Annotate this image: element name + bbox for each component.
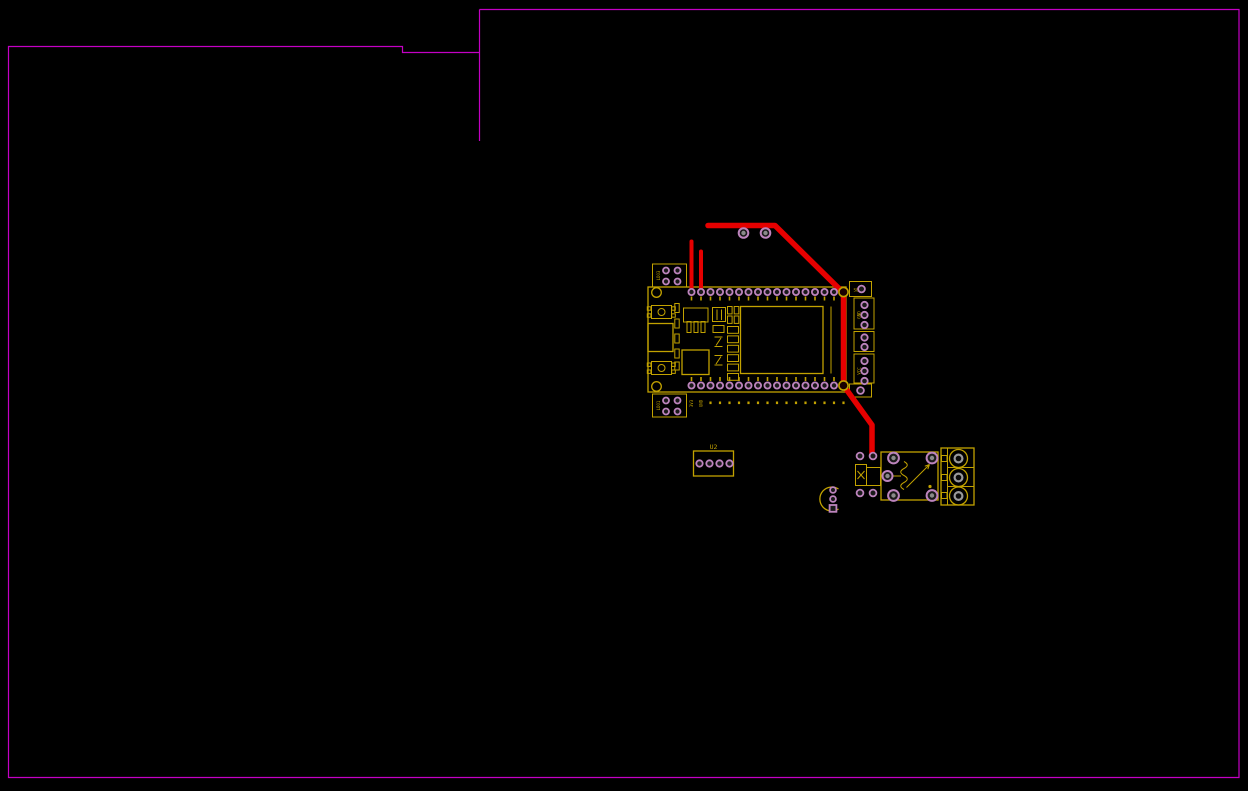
boot-button[interactable] [647, 306, 675, 319]
through-hole-pad[interactable] [783, 377, 789, 389]
jumper-block-top-left[interactable]: LDO3 [653, 264, 687, 287]
diode-symbol [715, 337, 723, 347]
through-hole-pad[interactable] [726, 289, 732, 301]
u2-refdes[interactable]: U2 [710, 443, 718, 451]
via[interactable] [761, 228, 771, 238]
relay-pads[interactable] [883, 453, 938, 501]
through-hole-pad[interactable] [831, 289, 837, 301]
through-hole-pad[interactable] [698, 289, 704, 301]
through-hole-pad[interactable] [812, 289, 818, 301]
through-hole-pad[interactable] [821, 377, 827, 389]
bottom-pin-name-row: 3V3 GND [689, 399, 845, 407]
transistor-pads[interactable] [830, 487, 837, 512]
voltage-regulator[interactable] [684, 308, 709, 333]
via[interactable] [739, 228, 749, 238]
corner-pad-highlight[interactable] [839, 381, 848, 390]
through-hole-pad[interactable] [802, 377, 808, 389]
through-hole-pad[interactable] [802, 289, 808, 301]
through-hole-pad[interactable] [793, 289, 799, 301]
through-hole-pad[interactable] [774, 289, 780, 301]
passive-parts [713, 307, 739, 381]
through-hole-pad[interactable] [736, 377, 742, 389]
through-hole-pad[interactable] [764, 289, 770, 301]
mounting-hole[interactable] [652, 382, 662, 392]
through-hole-pad[interactable] [755, 377, 761, 389]
trace-main[interactable] [708, 226, 872, 458]
tiny-silk-label: 3V3 [689, 399, 694, 407]
relay-switch-lever [907, 465, 930, 488]
corner-pad-highlight[interactable] [839, 287, 848, 296]
jumper-block-bottom-left[interactable]: LDO1 [653, 394, 687, 417]
through-hole-pad[interactable] [774, 377, 780, 389]
through-hole-pad[interactable] [745, 289, 751, 301]
tiny-silk-label: LDO1 [656, 400, 661, 410]
through-hole-pad[interactable] [736, 289, 742, 301]
pcb-layout-svg: LDO3 LDO1 S0 GND VCC U2 [0, 0, 1248, 791]
reset-button[interactable] [647, 362, 675, 375]
pcb-editor-canvas[interactable]: LDO3 LDO1 S0 GND VCC U2 [0, 0, 1248, 791]
through-hole-pad[interactable] [698, 377, 704, 389]
relay-contact-dot [928, 485, 931, 488]
through-hole-pad[interactable] [793, 377, 799, 389]
through-hole-pad[interactable] [688, 377, 694, 389]
esp32-bottom-pin-row[interactable] [688, 377, 848, 390]
through-hole-pad[interactable] [755, 289, 761, 301]
through-hole-pad[interactable] [745, 377, 751, 389]
through-hole-pad[interactable] [717, 289, 723, 301]
esp32-can-outline[interactable] [741, 307, 824, 374]
usb-connector[interactable] [648, 324, 673, 352]
through-hole-pad[interactable] [783, 289, 789, 301]
terminal-holes[interactable] [950, 450, 968, 506]
through-hole-pad[interactable] [688, 289, 694, 301]
esp32-top-pin-row[interactable] [688, 287, 848, 300]
through-hole-pad[interactable] [717, 377, 723, 389]
esp32-module-footprint[interactable] [647, 287, 846, 392]
esp32-courtyard[interactable] [648, 287, 846, 392]
through-hole-pad[interactable] [812, 377, 818, 389]
tiny-silk-label: GND [699, 399, 704, 407]
right-connector-pads[interactable] [857, 286, 868, 394]
usb-uart-chip[interactable] [682, 350, 709, 375]
board-outline[interactable] [9, 10, 1240, 778]
through-hole-pad[interactable] [831, 377, 837, 389]
mounting-hole[interactable] [652, 288, 662, 298]
tiny-silk-label: LDO3 [656, 270, 661, 280]
diode-symbol [715, 356, 723, 366]
through-hole-pad[interactable] [707, 377, 713, 389]
through-hole-pad[interactable] [821, 289, 827, 301]
through-hole-pad[interactable] [707, 289, 713, 301]
relay-coil-symbol [901, 462, 908, 490]
u2-pads[interactable] [696, 460, 732, 466]
flyback-diode[interactable] [856, 465, 881, 486]
diode-x-mark [858, 471, 865, 479]
through-hole-pad[interactable] [764, 377, 770, 389]
